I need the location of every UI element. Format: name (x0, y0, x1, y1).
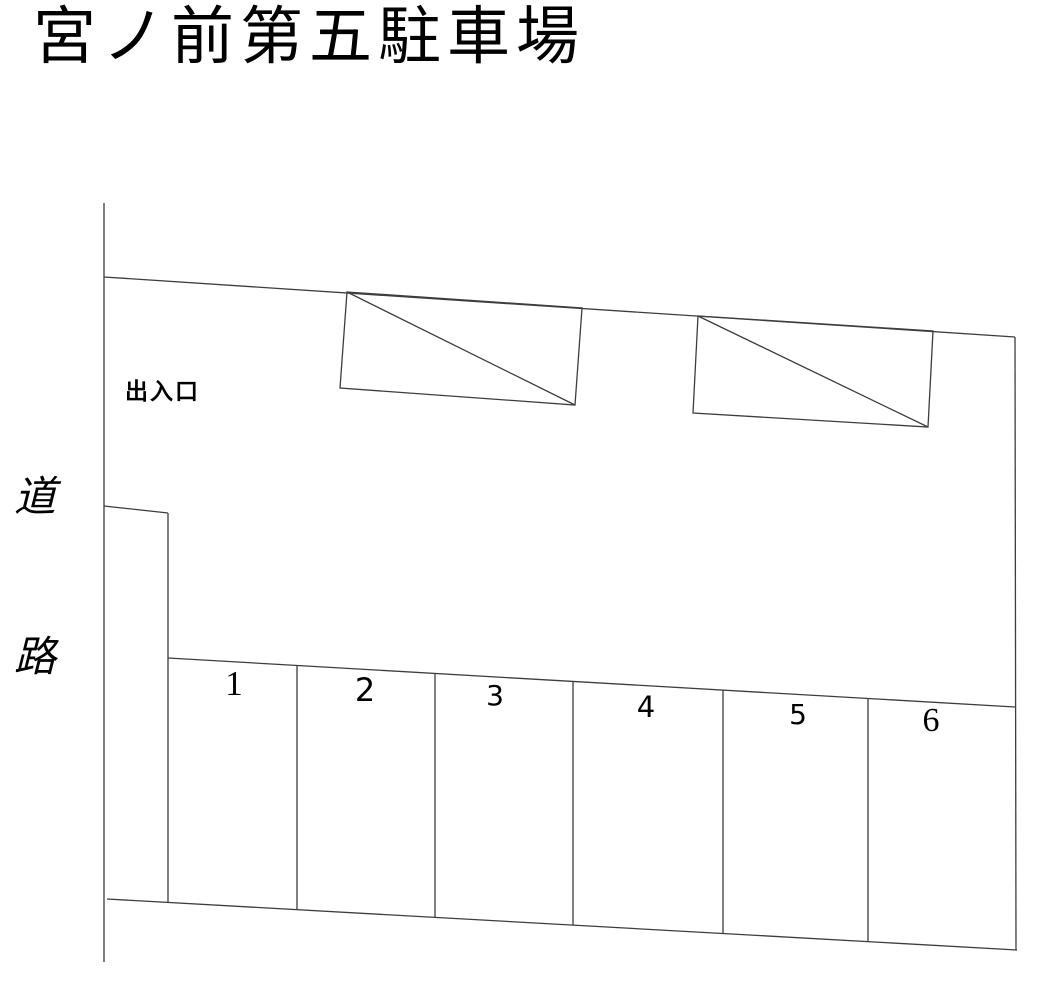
site-plan-drawing (0, 0, 1052, 981)
stall-number-1: 1 (225, 666, 243, 701)
entrance-exit-label: 出入口 (125, 372, 200, 406)
east-boundary-line (1015, 337, 1016, 950)
crossed-structure-2 (693, 316, 933, 427)
stall-number-3: 3 (486, 682, 504, 710)
stall-row-top-line (168, 658, 1015, 707)
stall-number-2: 2 (355, 674, 375, 706)
stall-number-6: 6 (923, 704, 940, 738)
road-label-char-bottom: 路 (14, 637, 56, 679)
crossed-structure-2-diagonal (698, 316, 928, 427)
stall-number-5: 5 (789, 701, 807, 729)
parking-lot-map: 宮ノ前第五駐車場 道 路 出入口 (0, 0, 1052, 981)
crossed-structure-1-diagonal (347, 292, 575, 405)
road-notch-line (104, 506, 168, 513)
south-boundary-line (107, 899, 1017, 950)
road-label-char-top: 道 (14, 477, 56, 519)
stall-number-4: 4 (637, 693, 655, 722)
crossed-structure-1 (340, 292, 582, 405)
